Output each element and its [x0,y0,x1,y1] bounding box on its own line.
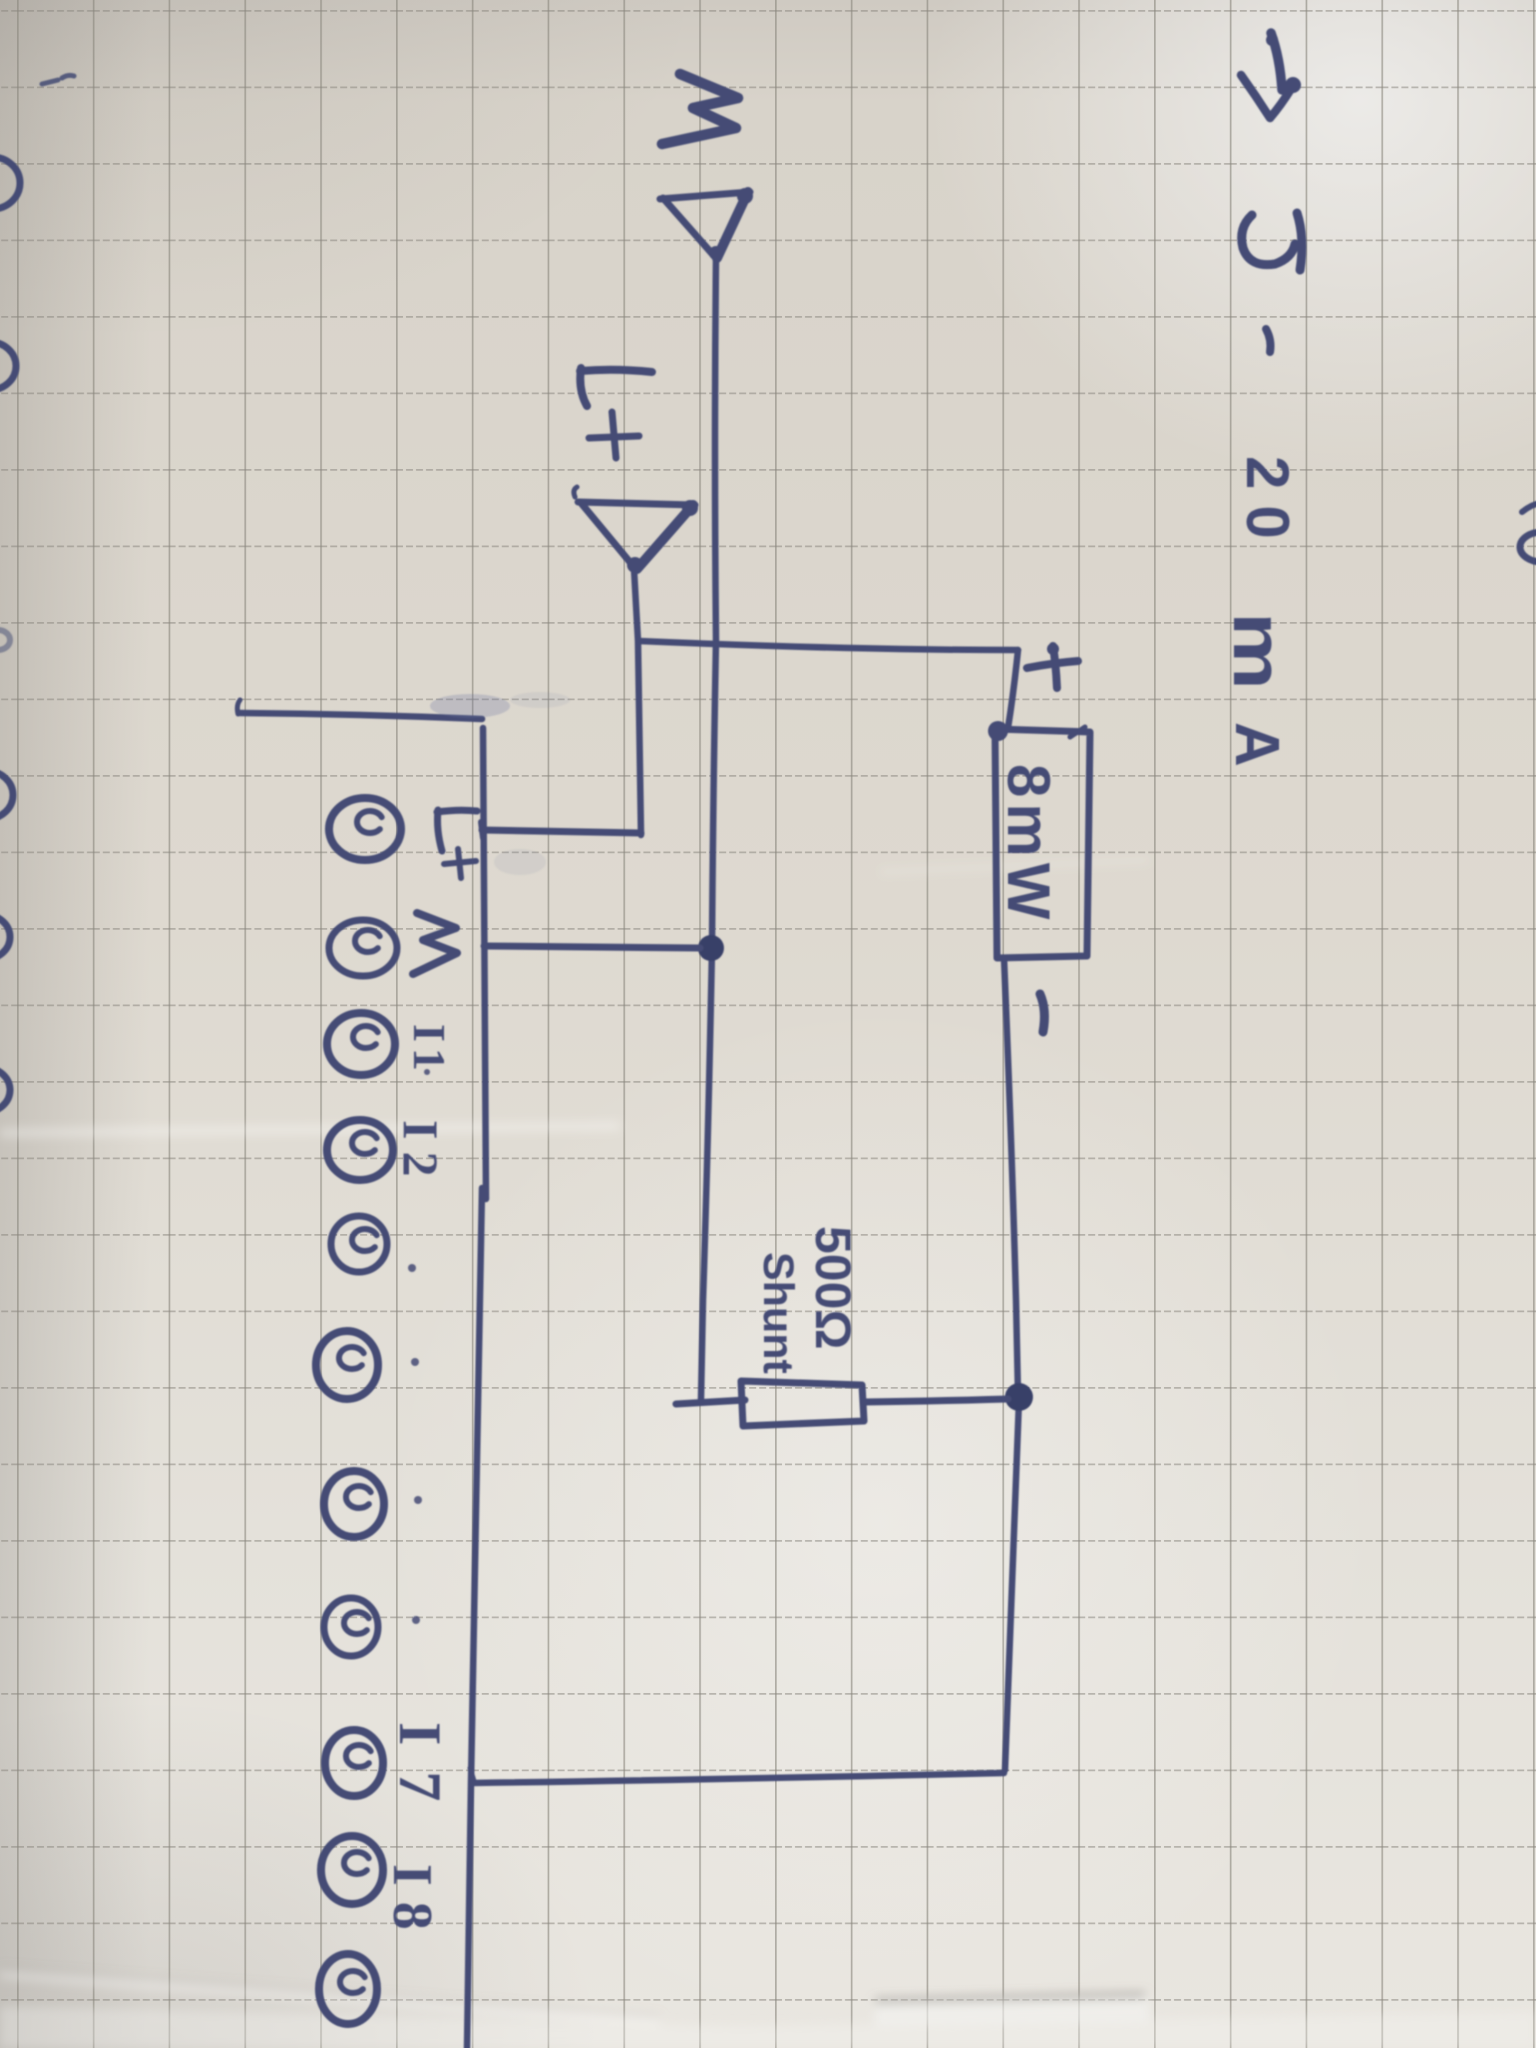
svg-text:I8: I8 [381,1864,443,1946]
svg-text:I7: I7 [387,1722,453,1827]
svg-text:Shunt: Shunt [754,1252,802,1374]
svg-text:8mW: 8mW [995,764,1062,925]
svg-text:I1: I1 [404,1024,455,1077]
svg-text:500Ω: 500Ω [805,1226,861,1350]
svg-text:I2: I2 [393,1120,449,1188]
svg-text:A: A [1222,722,1291,767]
svg-text:20: 20 [1234,456,1301,555]
svg-text:m: m [1219,612,1297,690]
